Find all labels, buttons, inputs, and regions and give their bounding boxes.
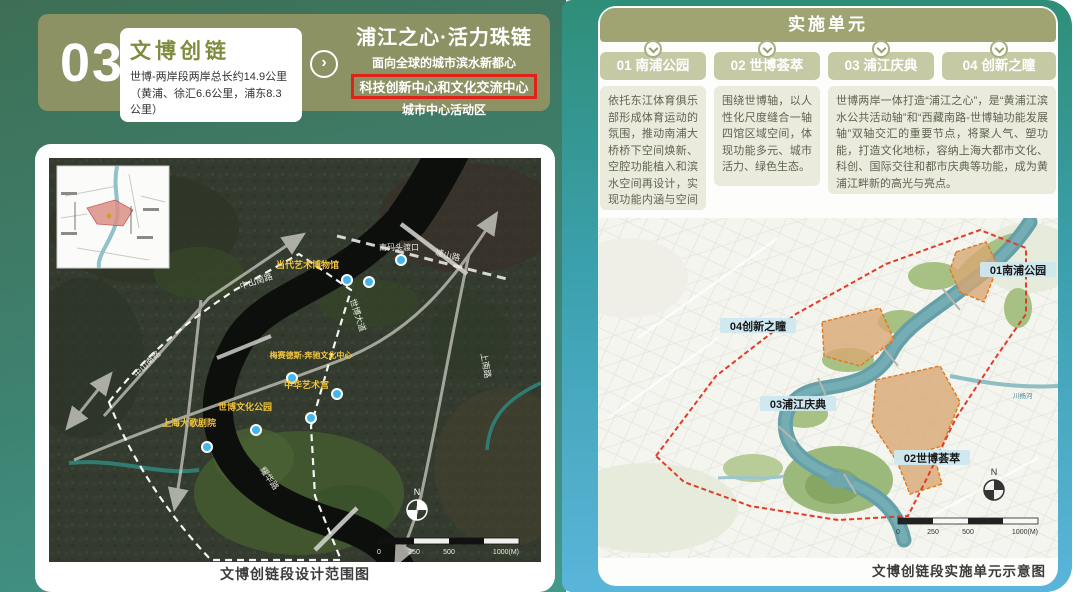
poi-label: 中华艺术宫 bbox=[284, 379, 329, 390]
implementation-units-map: 01南浦公园 04创新之瞳 03浦江庆典 02世博荟萃 川杨河 bbox=[598, 218, 1058, 558]
highlighted-tagline: 科技创新中心和文化交流中心 bbox=[351, 74, 536, 99]
chevron-down-circle-icon[interactable] bbox=[644, 40, 662, 58]
chevron-down-circle-icon[interactable] bbox=[758, 40, 776, 58]
implementation-units-header: 实施单元 bbox=[600, 8, 1056, 42]
implementation-units-card: 实施单元 01 南浦公园 02 世博荟萃 03 浦江庆典 04 创新之瞳 依托东… bbox=[598, 6, 1058, 586]
svg-text:250: 250 bbox=[408, 549, 420, 556]
unit-description-02: 围绕世博轴，以人性化尺度缝合一轴四馆区域空间，体现功能多元、城市活力、绿色生态。 bbox=[714, 86, 820, 186]
svg-text:250: 250 bbox=[927, 529, 939, 536]
unit-description-03-04: 世博两岸一体打造“浦江之心”，是“黄浦江滨水公共活动轴”和“西藏南路-世博轴功能… bbox=[828, 86, 1056, 194]
chevron-right-circle-icon[interactable]: › bbox=[310, 50, 338, 78]
poi-label: 世博文化公园 bbox=[218, 401, 272, 412]
section-subtitle: 世博-两岸段两岸总长约14.9公里（黄浦、徐汇6.6公里，浦东8.3公里） bbox=[130, 69, 292, 119]
water-label: 川杨河 bbox=[1013, 391, 1033, 400]
svg-text:04创新之瞳: 04创新之瞳 bbox=[730, 319, 786, 333]
svg-text:0: 0 bbox=[896, 529, 900, 536]
page: 03 文博创链 世博-两岸段两岸总长约14.9公里（黄浦、徐汇6.6公里，浦东8… bbox=[0, 0, 1080, 592]
map-caption: 文博创链段设计范围图 bbox=[35, 564, 555, 584]
ferry-label: 南码头渡口 bbox=[379, 242, 419, 252]
svg-text:N: N bbox=[991, 467, 998, 477]
area-label-04: 04创新之瞳 bbox=[720, 318, 796, 333]
right-panel: 实施单元 01 南浦公园 02 世博荟萃 03 浦江庆典 04 创新之瞳 依托东… bbox=[562, 0, 1072, 592]
location-inset-map bbox=[57, 166, 169, 268]
tagline-1: 面向全球的城市滨水新都心 bbox=[344, 54, 544, 71]
design-scope-map: 当代艺术博物馆 中华艺术宫 梅赛德斯-奔驰文化中心 世博文化公园 上海大歌剧院 … bbox=[49, 158, 541, 562]
svg-text:0: 0 bbox=[377, 549, 381, 556]
left-panel: 03 文博创链 世博-两岸段两岸总长约14.9公里（黄浦、徐汇6.6公里，浦东8… bbox=[0, 0, 566, 592]
chevron-down-circle-icon[interactable] bbox=[872, 40, 890, 58]
unit-tab-label: 02 世博荟萃 bbox=[731, 58, 804, 73]
unit-tab-02[interactable]: 02 世博荟萃 bbox=[714, 52, 820, 80]
svg-text:02世博荟萃: 02世博荟萃 bbox=[904, 451, 960, 465]
poi-label: 当代艺术博物馆 bbox=[276, 259, 339, 270]
area-label-01: 01南浦公园 bbox=[980, 262, 1056, 277]
unit-tab-01[interactable]: 01 南浦公园 bbox=[600, 52, 706, 80]
svg-text:500: 500 bbox=[443, 549, 455, 556]
svg-text:N: N bbox=[414, 487, 421, 497]
tagline-3: 城市中心活动区 bbox=[344, 101, 544, 118]
svg-text:1000(M): 1000(M) bbox=[1012, 529, 1038, 536]
design-scope-map-card: 当代艺术博物馆 中华艺术宫 梅赛德斯-奔驰文化中心 世博文化公园 上海大歌剧院 … bbox=[35, 144, 555, 592]
unit-tab-label: 04 创新之瞳 bbox=[963, 58, 1036, 73]
slogan: 浦江之心·活力珠链 bbox=[344, 21, 544, 50]
area-label-03: 03浦江庆典 bbox=[760, 396, 836, 411]
unit-description-01: 依托东江体育俱乐部形成体育运动的氛围，推动南浦大桥桥下空间焕新、空腔功能植入和滨… bbox=[600, 86, 706, 210]
positioning-block: 浦江之心·活力珠链 面向全球的城市滨水新都心 科技创新中心和文化交流中心 城市中… bbox=[344, 21, 544, 118]
unit-tab-03[interactable]: 03 浦江庆典 bbox=[828, 52, 934, 80]
poi-label: 梅赛德斯-奔驰文化中心 bbox=[270, 350, 353, 360]
unit-tab-04[interactable]: 04 创新之瞳 bbox=[942, 52, 1056, 80]
svg-text:500: 500 bbox=[962, 529, 974, 536]
svg-text:01南浦公园: 01南浦公园 bbox=[990, 263, 1046, 277]
poi-label: 上海大歌剧院 bbox=[162, 417, 216, 428]
section-title: 文博创链 bbox=[130, 35, 292, 65]
section-header: 03 文博创链 世博-两岸段两岸总长约14.9公里（黄浦、徐汇6.6公里，浦东8… bbox=[38, 14, 550, 111]
unit-tab-label: 03 浦江庆典 bbox=[845, 58, 918, 73]
svg-text:1000(M): 1000(M) bbox=[493, 549, 519, 556]
svg-text:03浦江庆典: 03浦江庆典 bbox=[770, 397, 826, 411]
section-title-card: 文博创链 世博-两岸段两岸总长约14.9公里（黄浦、徐汇6.6公里，浦东8.3公… bbox=[120, 28, 302, 122]
unit-tab-label: 01 南浦公园 bbox=[617, 58, 690, 73]
chevron-down-circle-icon[interactable] bbox=[990, 40, 1008, 58]
area-label-02: 02世博荟萃 bbox=[894, 450, 970, 465]
map-caption: 文博创链段实施单元示意图 bbox=[872, 560, 1046, 580]
